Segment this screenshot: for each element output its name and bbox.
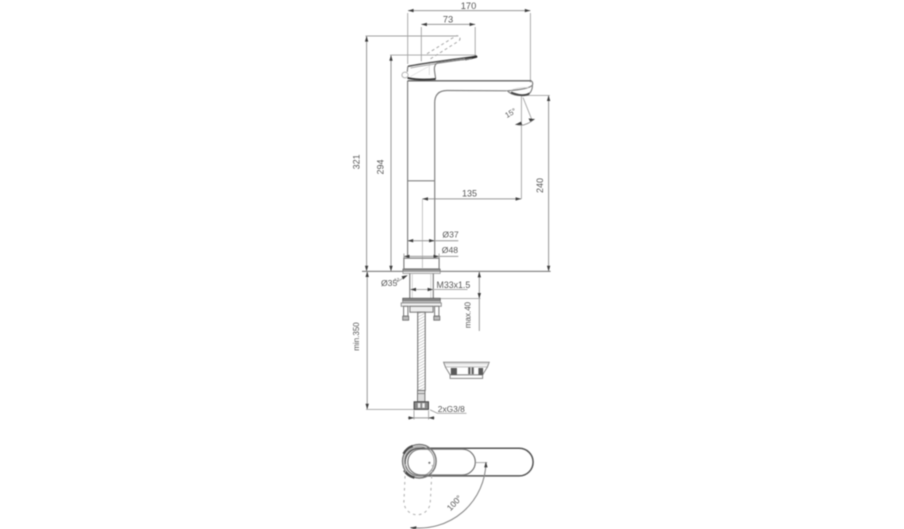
svg-text:M33x1.5: M33x1.5 <box>437 280 471 290</box>
svg-text:max.40: max.40 <box>463 301 472 328</box>
svg-text:73: 73 <box>443 15 453 25</box>
svg-text:min.350: min.350 <box>352 322 361 351</box>
svg-text:135: 135 <box>462 188 477 198</box>
svg-text:2xG3/8: 2xG3/8 <box>438 404 465 414</box>
svg-text:294: 294 <box>376 159 386 174</box>
svg-text:Ø48: Ø48 <box>442 245 458 255</box>
svg-text:321: 321 <box>351 154 361 169</box>
svg-text:Ø37: Ø37 <box>442 229 458 239</box>
svg-text:240: 240 <box>535 178 545 193</box>
svg-text:170: 170 <box>461 1 477 11</box>
